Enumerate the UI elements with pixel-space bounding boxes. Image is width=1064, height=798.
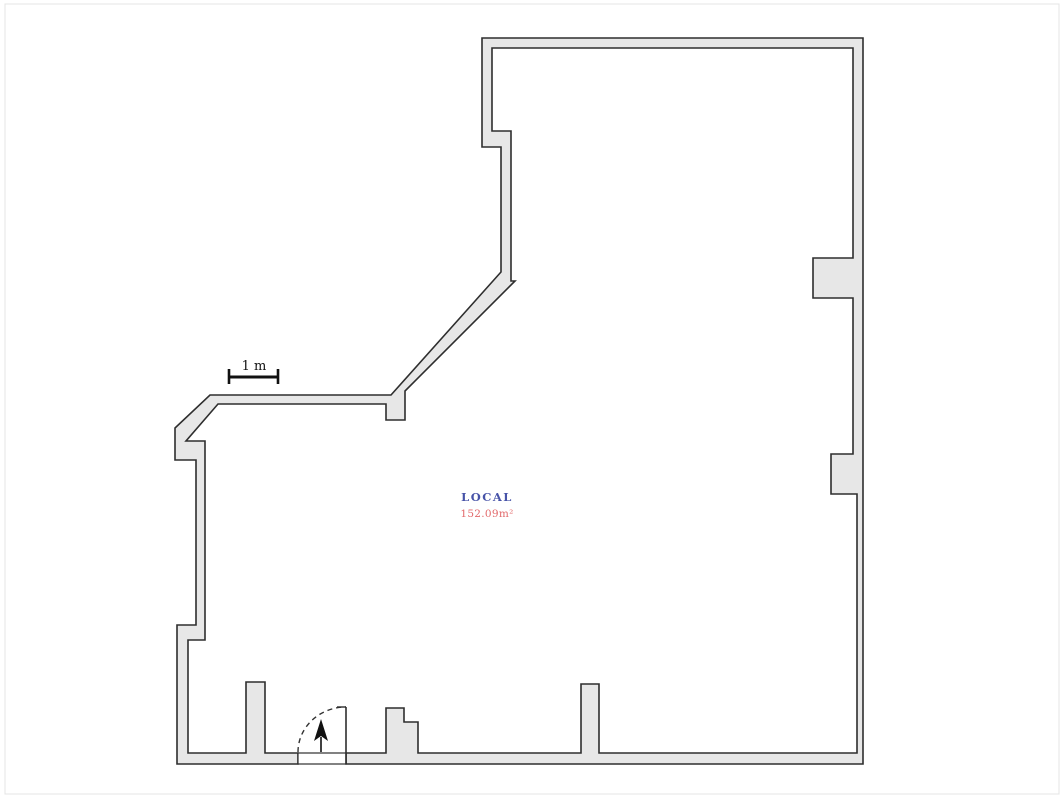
scale-bar-label: 1 m: [242, 359, 267, 374]
image-frame: [5, 4, 1059, 794]
floorplan-canvas: 1 m LOCAL 152.09m²: [0, 0, 1064, 798]
room-area-label: 152.09m²: [460, 508, 513, 520]
door-threshold: [298, 753, 346, 764]
room-name-label: LOCAL: [461, 490, 513, 504]
wall-outline: [175, 38, 863, 764]
floorplan: 1 m LOCAL 152.09m²: [0, 0, 1064, 798]
scale-bar: 1 m: [229, 359, 278, 384]
